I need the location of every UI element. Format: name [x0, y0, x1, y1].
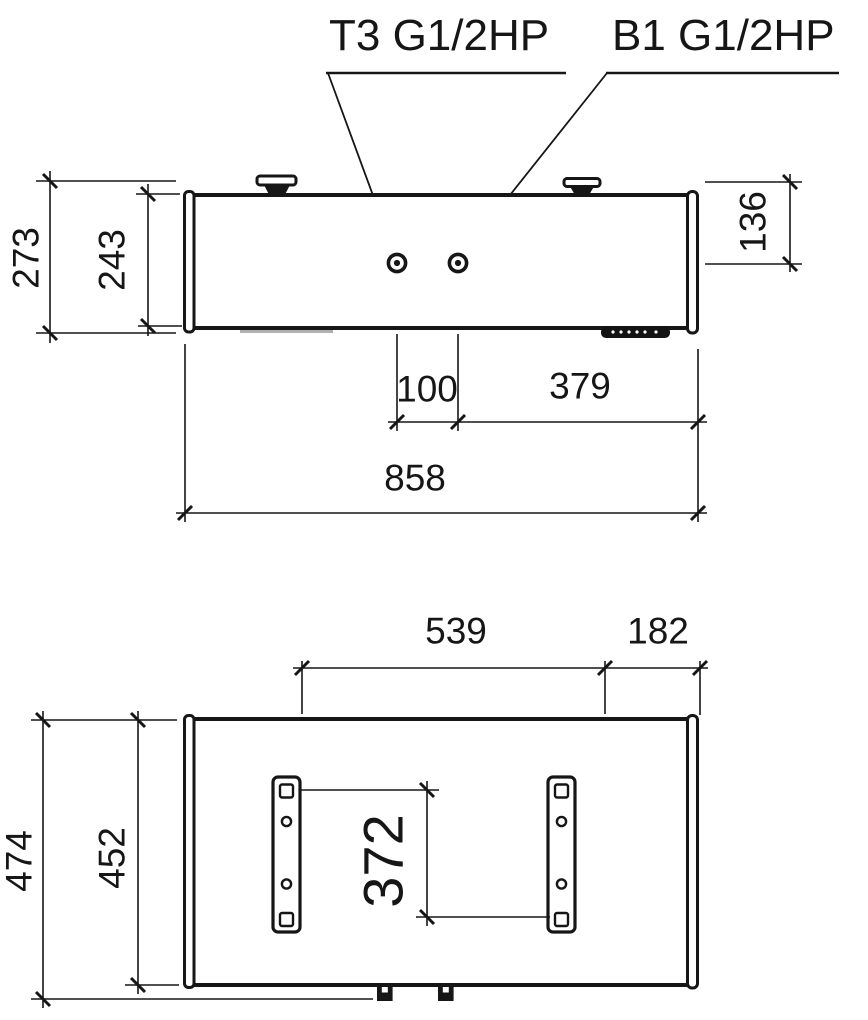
technical-drawing: T3 G1/2HP B1 G1/2HP	[0, 0, 868, 1020]
port-center	[455, 260, 461, 266]
dim-text-452: 452	[92, 827, 133, 889]
tank-end-band-left	[185, 716, 195, 988]
bracket-hole-round	[282, 817, 291, 826]
top-fitting-left	[257, 176, 296, 195]
dim-text-539: 539	[425, 611, 487, 652]
dim-lengths: 100 379 858	[176, 334, 707, 522]
bracket-hole-square	[280, 913, 293, 926]
fitting-cap	[257, 176, 296, 185]
plate-mark	[635, 330, 638, 333]
dim-text-379: 379	[549, 366, 611, 407]
dim-text-136: 136	[733, 191, 774, 253]
drawing-canvas: T3 G1/2HP B1 G1/2HP	[0, 0, 868, 1020]
mounting-bracket-right	[548, 777, 575, 932]
plate-mark	[627, 330, 630, 333]
dim-body-height: 243	[92, 184, 183, 336]
port-center	[394, 260, 400, 266]
bracket-plate	[548, 777, 575, 932]
fitting-cap	[564, 179, 600, 187]
top-view: T3 G1/2HP B1 G1/2HP	[6, 11, 840, 522]
plate-mark	[654, 330, 657, 333]
bracket-hole-square	[555, 785, 568, 798]
dim-ports-from-top: 136	[705, 174, 802, 272]
bracket-hole-round	[557, 879, 566, 888]
top-fitting-right	[564, 179, 600, 196]
port-label-b1: B1 G1/2HP	[612, 11, 835, 60]
port-label-t3: T3 G1/2HP	[329, 11, 549, 60]
tank-body-bottom	[193, 719, 688, 985]
bracket-plate	[273, 777, 300, 932]
port-t3	[388, 254, 405, 271]
bracket-hole-round	[557, 817, 566, 826]
dim-text-243: 243	[92, 229, 133, 291]
tank-body-side	[193, 195, 688, 328]
plate-mark	[619, 330, 622, 333]
mounting-foot-right	[438, 986, 454, 1001]
dim-text-100: 100	[396, 369, 458, 410]
plate-mark	[611, 330, 614, 333]
bracket-hole-round	[282, 879, 291, 888]
dim-text-858: 858	[384, 458, 446, 499]
dim-text-182: 182	[627, 611, 689, 652]
dim-bracket-spacing: 539 182	[293, 611, 708, 716]
port-b1	[449, 254, 466, 271]
dim-body-width: 452	[92, 711, 180, 994]
tank-end-band-right	[688, 716, 698, 989]
tank-end-band-right	[688, 192, 698, 334]
mounting-bracket-left	[273, 777, 300, 932]
bracket-hole-square	[555, 913, 568, 926]
bottom-view: 539 182 372 474 452	[0, 611, 708, 1009]
serial-plate	[601, 327, 670, 339]
bracket-hole-square	[280, 785, 293, 798]
mounting-foot-left	[377, 986, 393, 1001]
dim-text-474: 474	[0, 830, 40, 892]
dim-text-273: 273	[6, 227, 47, 289]
tank-end-band-left	[185, 192, 195, 333]
dim-text-372: 372	[352, 814, 415, 907]
plate-mark	[643, 330, 646, 333]
